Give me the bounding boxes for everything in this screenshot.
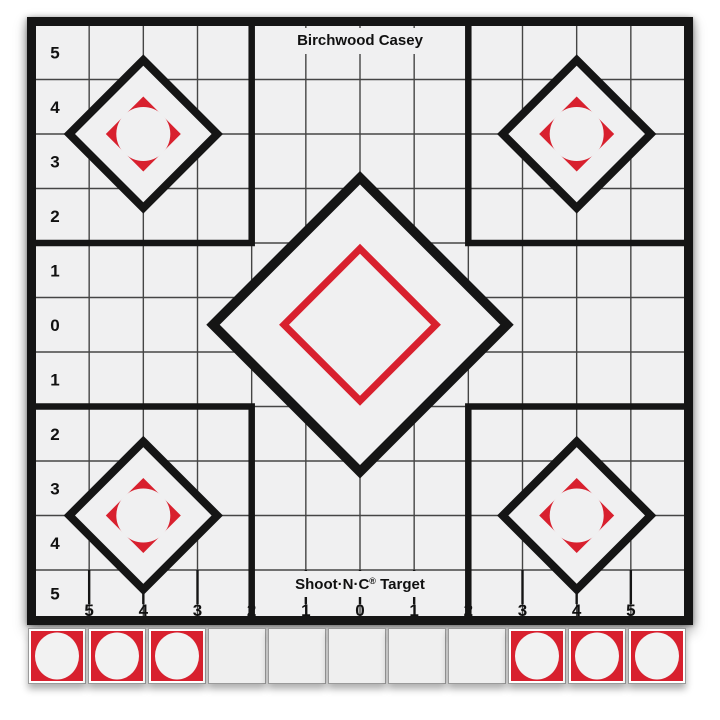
- brand-title: Birchwood Casey: [297, 32, 424, 49]
- paster-square-filled: [628, 628, 686, 684]
- target-graphic: 54321012345 54321012345 Birchwood Casey …: [27, 17, 693, 625]
- paster-square-filled: [148, 628, 206, 684]
- left-axis-label: 5: [50, 43, 59, 62]
- left-axis-label: 1: [50, 370, 59, 389]
- left-axis-label: 1: [50, 261, 59, 280]
- left-axis-label: 4: [50, 98, 60, 117]
- paster-square-filled: [28, 628, 86, 684]
- diamond-top-right-circle: [550, 107, 604, 161]
- paster-square-blank: [388, 628, 446, 684]
- diamond-bottom-left-circle: [116, 489, 170, 543]
- product-brand-text: Shoot·N·C: [295, 576, 369, 593]
- diamond-bottom-right-circle: [550, 489, 604, 543]
- paster-strip: [28, 628, 686, 684]
- left-axis-label: 0: [50, 316, 59, 335]
- left-axis-label: 2: [50, 425, 59, 444]
- paster-square-blank: [208, 628, 266, 684]
- paster-square-blank: [328, 628, 386, 684]
- paster-square-filled: [568, 628, 626, 684]
- left-axis-label: 3: [50, 152, 59, 171]
- diamond-top-left-circle: [116, 107, 170, 161]
- left-axis-label: 2: [50, 207, 59, 226]
- paster-square-blank: [268, 628, 326, 684]
- paster-square-filled: [88, 628, 146, 684]
- target-sheet: 54321012345 54321012345 Birchwood Casey …: [27, 17, 693, 625]
- left-axis-label: 3: [50, 479, 59, 498]
- product-caption: Shoot·N·C® Target: [295, 576, 425, 593]
- product-suffix-text: Target: [376, 576, 425, 593]
- paster-square-blank: [448, 628, 506, 684]
- left-axis-label: 4: [50, 534, 60, 553]
- paster-square-filled: [508, 628, 566, 684]
- left-axis-label: 5: [50, 585, 59, 604]
